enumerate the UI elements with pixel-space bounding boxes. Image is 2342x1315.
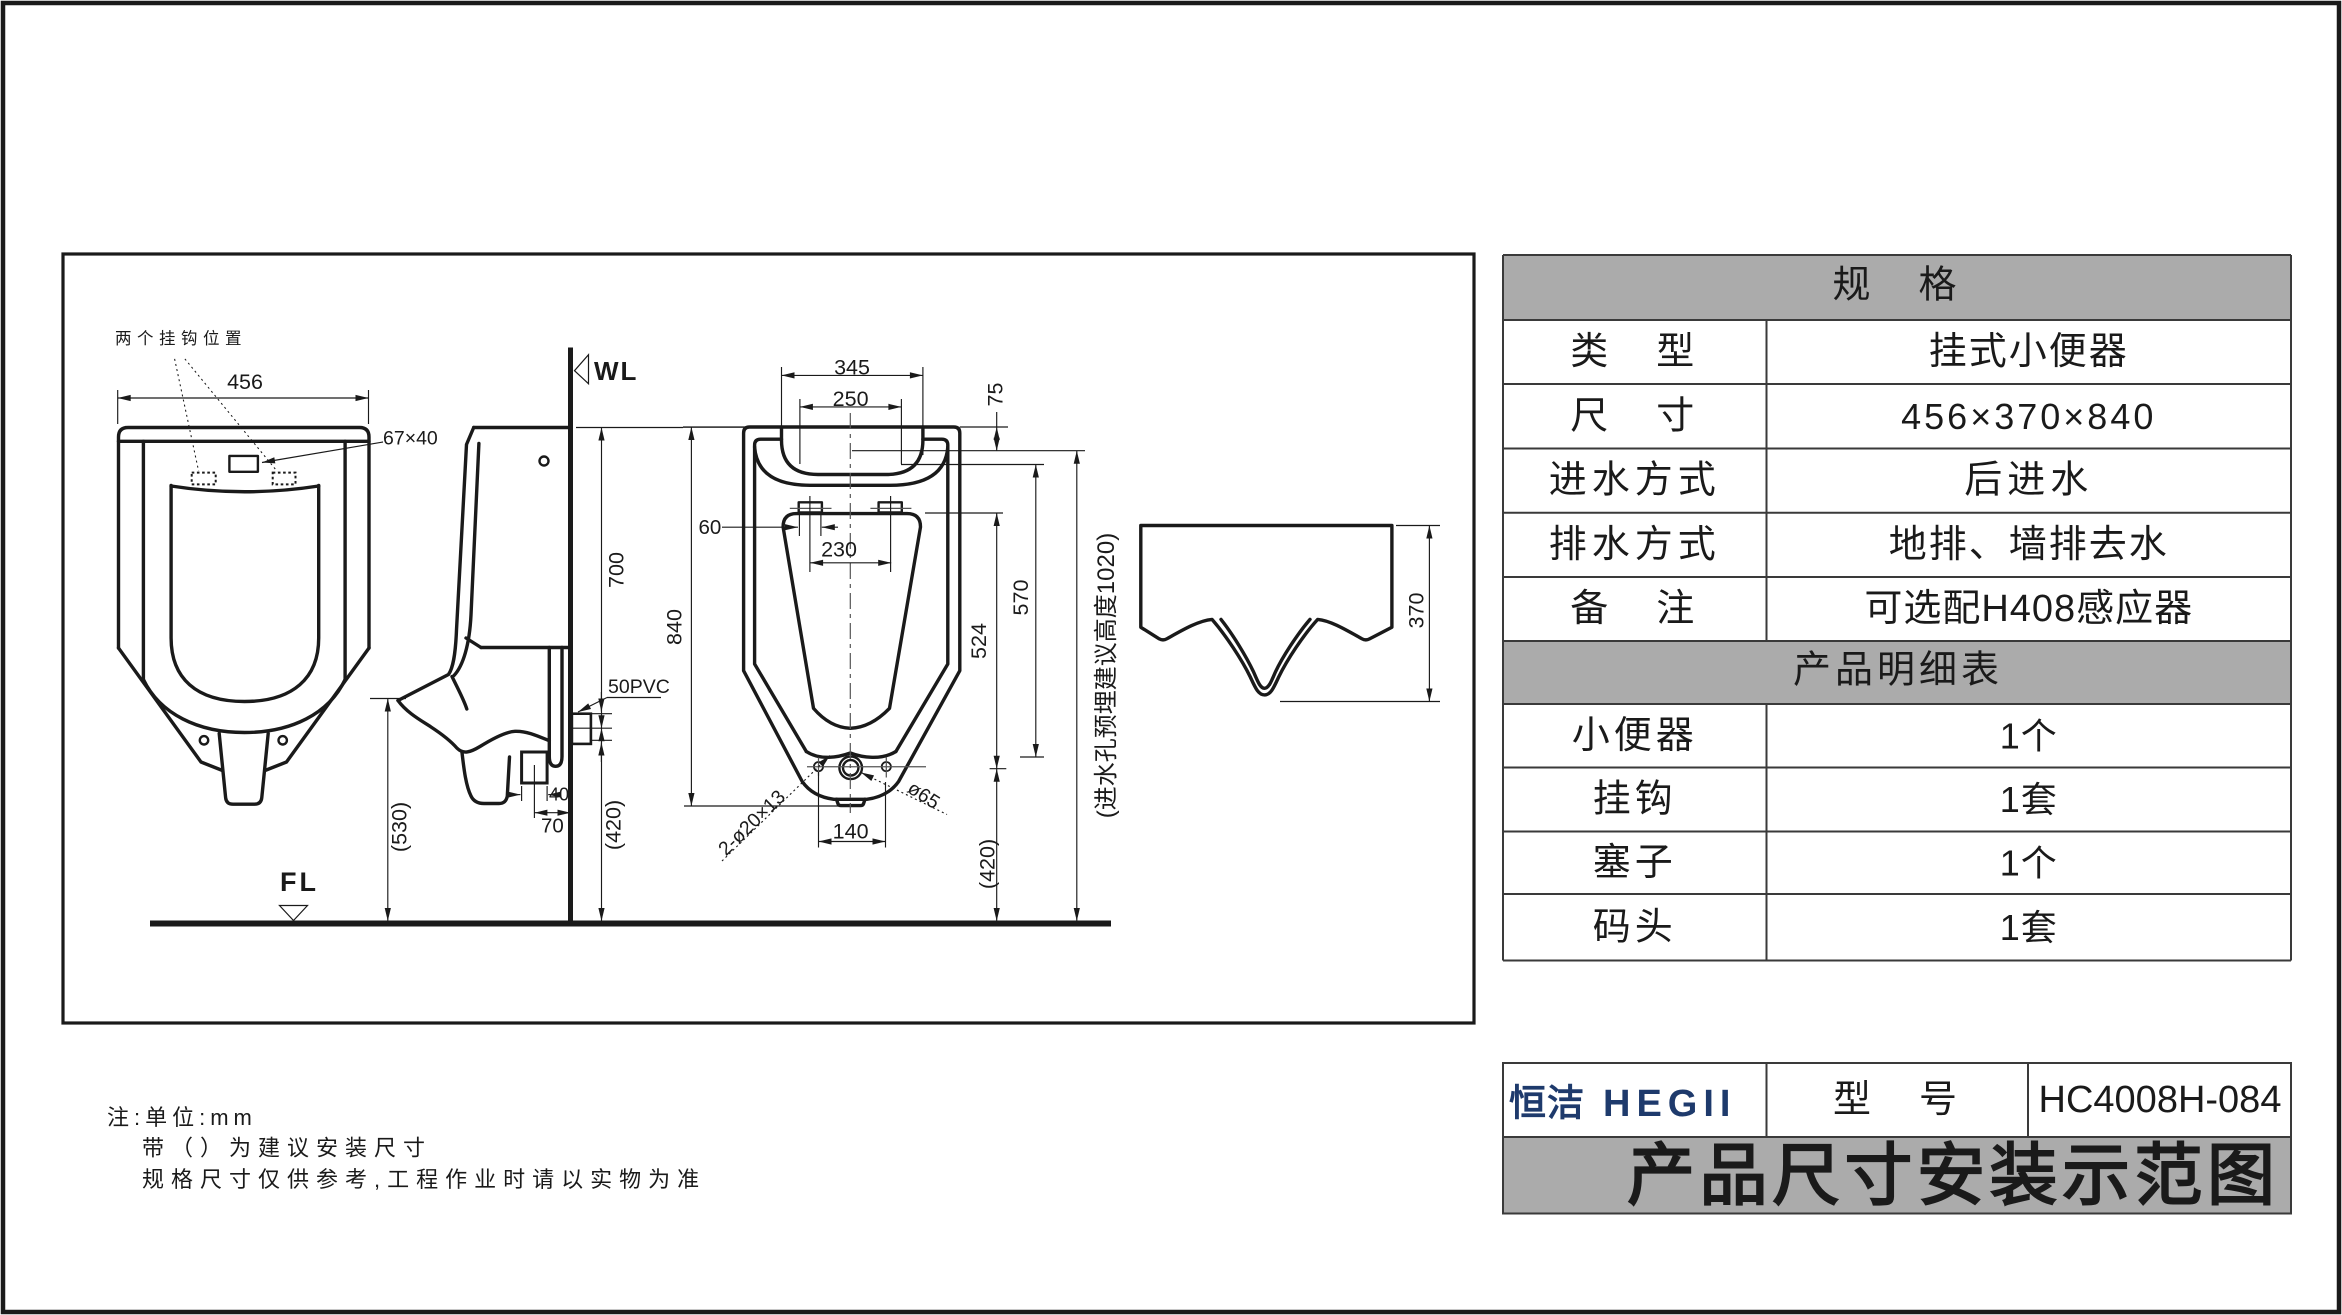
svg-text:(420): (420) (976, 839, 1000, 889)
svg-text:排水方式: 排水方式 (1549, 524, 1721, 566)
svg-text:小便器: 小便器 (1572, 715, 1698, 757)
svg-text:恒洁: 恒洁 (1509, 1083, 1585, 1124)
svg-text:456: 456 (227, 370, 263, 394)
svg-text:规格尺寸仅供参考,工程作业时请以实物为准: 规格尺寸仅供参考,工程作业时请以实物为准 (142, 1167, 706, 1192)
svg-text:类 型: 类 型 (1570, 331, 1699, 373)
svg-text:250: 250 (833, 387, 869, 411)
svg-text:FL: FL (280, 867, 319, 897)
svg-text:1个: 1个 (2000, 715, 2058, 756)
svg-text:后进水: 后进水 (1964, 460, 2093, 502)
svg-text:524: 524 (967, 623, 991, 659)
svg-text:50PVC: 50PVC (608, 676, 670, 698)
svg-text:1套: 1套 (2000, 907, 2058, 948)
svg-text:规 格: 规 格 (1832, 265, 1961, 307)
svg-text:60: 60 (699, 516, 722, 539)
svg-text:456×370×840: 456×370×840 (1901, 396, 2156, 437)
svg-text:70: 70 (541, 815, 564, 838)
svg-text:370: 370 (1405, 593, 1429, 629)
svg-text:HC4008H-084: HC4008H-084 (2039, 1079, 2282, 1121)
svg-text:700: 700 (605, 552, 629, 588)
svg-text:345: 345 (834, 356, 870, 380)
svg-text:230: 230 (821, 538, 857, 562)
svg-text:可选配H408感应器: 可选配H408感应器 (1864, 588, 2193, 630)
svg-text:产品明细表: 产品明细表 (1793, 650, 2003, 692)
svg-text:1个: 1个 (2000, 842, 2058, 883)
svg-text:型 号: 型 号 (1833, 1079, 1962, 1121)
svg-text:两个挂钩位置: 两个挂钩位置 (115, 329, 247, 348)
svg-text:40: 40 (549, 785, 569, 805)
svg-text:(420): (420) (602, 800, 626, 850)
svg-text:挂钩: 挂钩 (1593, 779, 1677, 821)
svg-text:WL: WL (594, 356, 638, 386)
svg-text:840: 840 (663, 609, 687, 645)
svg-text:(530): (530) (388, 802, 412, 852)
svg-text:尺 寸: 尺 寸 (1570, 395, 1699, 437)
svg-text:75: 75 (984, 383, 1008, 407)
svg-text:140: 140 (833, 820, 869, 844)
svg-text:67×40: 67×40 (383, 428, 438, 450)
svg-text:注:单位:mm: 注:单位:mm (107, 1105, 257, 1130)
svg-text:备 注: 备 注 (1570, 588, 1699, 630)
svg-text:塞子: 塞子 (1593, 842, 1677, 884)
svg-text:码头: 码头 (1593, 906, 1677, 948)
svg-text:产品尺寸安装示范图: 产品尺寸安装示范图 (1627, 1138, 2280, 1214)
svg-text:地排、墙排去水: 地排、墙排去水 (1889, 524, 2169, 566)
svg-text:1套: 1套 (2000, 779, 2058, 820)
svg-text:进水方式: 进水方式 (1549, 460, 1721, 502)
svg-text:(进水孔预埋建议高度1020): (进水孔预埋建议高度1020) (1093, 533, 1120, 818)
svg-text:挂式小便器: 挂式小便器 (1929, 331, 2129, 373)
svg-text:570: 570 (1009, 580, 1033, 616)
svg-text:HEGII: HEGII (1603, 1083, 1736, 1125)
svg-text:带（）为建议安装尺寸: 带（）为建议安装尺寸 (142, 1136, 432, 1161)
